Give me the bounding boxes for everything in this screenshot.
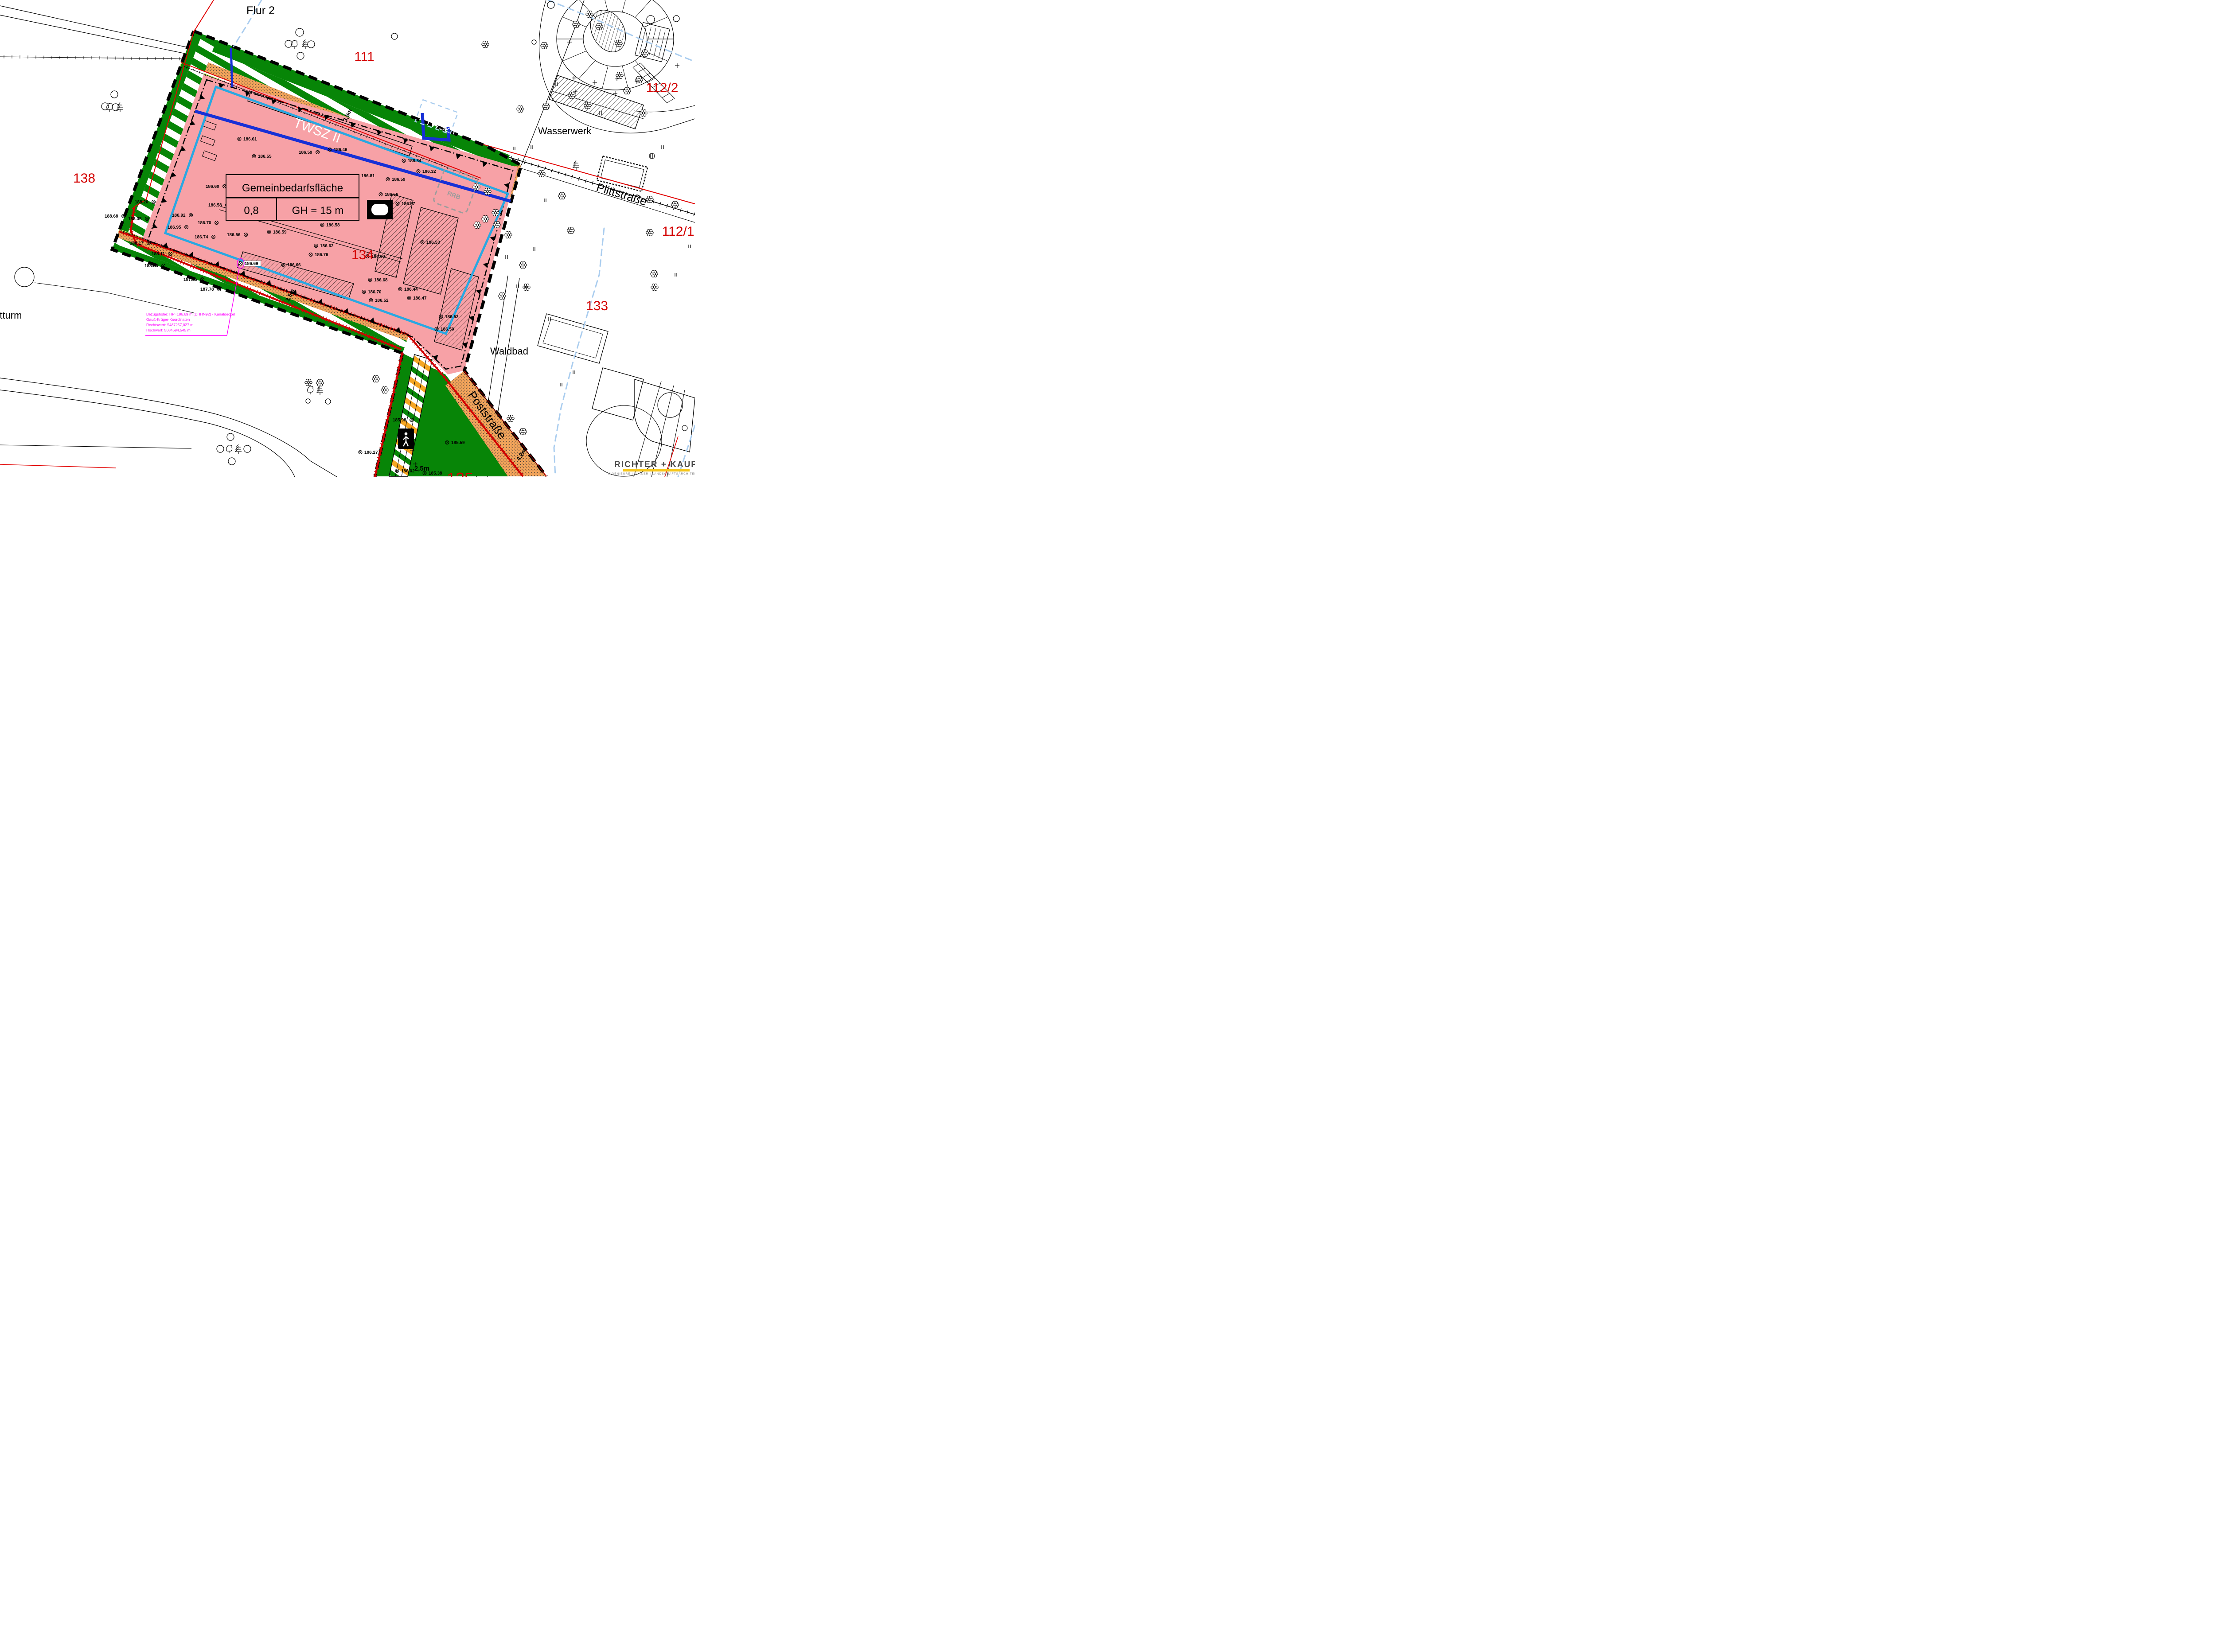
elevation-value: 186.74 — [195, 235, 208, 240]
shrub-flower-icon — [636, 76, 643, 83]
shrub-flower-icon — [615, 40, 622, 47]
elevation-value: 186.95 — [168, 225, 181, 230]
flower-center — [486, 190, 488, 192]
label-wartturm: rtturm — [0, 310, 22, 321]
ref-line1: Bezugshöhe: HP=186.69 m (DHHN92) - Kanal… — [146, 312, 235, 316]
flower-center — [375, 378, 377, 380]
elevation-value: 186.53 — [426, 240, 440, 245]
shrub-flower-icon — [624, 87, 631, 94]
elevation-value: 186.66 — [287, 263, 301, 268]
shrub-flower-icon — [519, 428, 527, 435]
elevation-value: 186.55 — [258, 154, 272, 159]
shrub-flower-icon — [492, 209, 499, 216]
public-building-symbol-oval — [371, 204, 388, 215]
info-box-gh: GH = 15 m — [292, 205, 344, 217]
shrub-flower-icon — [558, 192, 566, 199]
shrub-flower-icon — [507, 415, 514, 421]
head — [405, 432, 408, 436]
elevation-value: 186.59 — [299, 150, 312, 155]
elevation-value: 186.56 — [385, 192, 398, 197]
elevation-value: 186.56 — [227, 233, 241, 238]
flower-center — [501, 295, 503, 297]
logo-accent-bar — [623, 469, 690, 471]
parcel-112-1: 112/1 — [662, 224, 694, 239]
flower-center — [561, 195, 563, 197]
site-plan-map: 186.61186.59186.55186.46188.84186.32186.… — [0, 0, 695, 477]
label-waldbad: Waldbad — [490, 346, 528, 357]
elevation-value: 186.57 — [402, 202, 415, 206]
shrub-flower-icon — [641, 50, 648, 56]
flower-center — [674, 203, 676, 206]
shrub-flower-icon — [640, 109, 647, 116]
shrub-flower-icon — [568, 92, 575, 98]
elevation-value: 186.58 — [208, 203, 222, 208]
elevation-value: 186.44 — [404, 287, 418, 292]
flower-center — [319, 382, 321, 384]
shrub-flower-icon — [646, 229, 653, 236]
logo-name: RICHTER + KAUP — [614, 460, 695, 469]
shrub-flower-icon — [381, 386, 388, 393]
elevation-value: 186.32 — [422, 169, 436, 174]
shrub-flower-icon — [482, 215, 489, 222]
flower-center — [570, 229, 572, 231]
parcel-133: 133 — [586, 299, 608, 313]
parcel-134: 134 — [351, 248, 374, 262]
elevation-value: 186.58 — [326, 223, 340, 228]
pedestrian-crossing-sign — [398, 429, 414, 449]
shrub-flower-icon — [519, 261, 527, 268]
shrub-flower-icon — [573, 21, 580, 27]
elevation-value: 188.36 — [144, 264, 158, 269]
flower-center — [484, 43, 486, 45]
label-flur: Flur 2 — [246, 4, 275, 17]
shrub-flower-icon — [567, 227, 574, 234]
flower-center — [570, 94, 573, 96]
elevation-value: 188.17 — [130, 241, 144, 246]
flower-center — [383, 389, 386, 391]
elevation-value: 186.81 — [361, 174, 375, 179]
shrub-flower-icon — [538, 170, 545, 177]
shrub-flower-icon — [484, 188, 491, 195]
elevation-value: 186.60 — [206, 184, 219, 189]
elevation-value: 186.52 — [445, 315, 459, 319]
flower-center — [586, 104, 589, 106]
label-wasserwerk: Wasserwerk — [538, 125, 592, 136]
flower-center — [648, 231, 651, 234]
shrub-flower-icon — [596, 23, 603, 30]
flower-center — [638, 78, 640, 81]
elevation-value: 186.27 — [364, 450, 378, 455]
elevation-value: 188.20 — [135, 200, 148, 205]
flower-center — [522, 264, 524, 266]
elevation-value: 186.59 — [273, 230, 287, 235]
flower-center — [307, 381, 309, 383]
elevation-value: 185.59 — [451, 440, 465, 445]
flower-center — [507, 234, 509, 236]
info-box-title: Gemeinbedarfsfläche — [242, 182, 343, 194]
shrub-flower-icon — [482, 41, 489, 47]
site-plan-canvas: 186.61186.59186.55186.46188.84186.32186.… — [0, 0, 695, 477]
elevation-value: 186.02 — [401, 469, 415, 474]
info-box-grz: 0,8 — [244, 205, 258, 217]
elevation-value: 188.11 — [152, 252, 165, 257]
elevation-value: 186.50 — [441, 327, 454, 332]
shrub-flower-icon — [316, 379, 324, 386]
shrub-flower-icon — [586, 11, 593, 17]
elevation-value: 186.68 — [374, 278, 388, 283]
ref-line4: Hochwert: 5684594,545 m — [146, 328, 191, 332]
flower-center — [519, 108, 521, 110]
flower-center — [543, 44, 545, 47]
elevation-value: 186.70 — [198, 221, 211, 226]
shrub-flower-icon — [499, 292, 506, 299]
flower-center — [495, 223, 498, 226]
parcel-112-2: 112/2 — [646, 81, 679, 95]
shrub-flower-icon — [584, 102, 591, 109]
flower-center — [648, 198, 651, 200]
elevation-value: 185.38 — [429, 471, 442, 476]
shrub-flower-icon — [305, 379, 312, 386]
elevation-value: 186.69 — [245, 261, 258, 266]
elevation-value: 186.76 — [315, 253, 328, 257]
shrub-flower-icon — [517, 105, 524, 112]
parcel-125: 125 — [447, 469, 473, 477]
shrub-flower-icon — [474, 222, 481, 228]
shrub-flower-icon — [651, 284, 658, 290]
flower-center — [642, 112, 644, 114]
shrub-flower-icon — [541, 42, 548, 49]
elevation-value: 187.95 — [183, 277, 197, 282]
shrub-flower-icon — [505, 231, 512, 238]
elevation-value: 188.84 — [408, 159, 421, 164]
shrub-flower-icon — [671, 201, 679, 208]
flower-center — [476, 224, 478, 226]
elevation-value: 186.46 — [334, 148, 347, 152]
measure-2-5m: 2,5m — [414, 465, 429, 472]
flower-center — [484, 218, 486, 220]
logo-block: RICHTER + KAUP INGENIEURE | PLANER | LAN… — [608, 460, 695, 475]
ref-line2: Gauß-Krüger-Koordinaten — [146, 317, 190, 322]
shrub-flower-icon — [372, 375, 379, 382]
parcel-138: 138 — [73, 171, 95, 186]
elevation-value: 186.70 — [368, 290, 382, 295]
flower-center — [644, 52, 646, 54]
ref-line3: Rechtswert: 5487257,027 m — [146, 323, 193, 327]
elevation-value: 186.62 — [320, 244, 334, 249]
flower-center — [588, 13, 590, 15]
flower-center — [626, 90, 628, 92]
elevation-value: 186.61 — [243, 137, 257, 142]
blue-line-vertical — [231, 48, 232, 87]
elevation-value: 188.68 — [105, 214, 118, 219]
flower-center — [494, 211, 496, 214]
elevation-value: 186.52 — [375, 298, 389, 303]
shrub-flower-icon — [651, 270, 658, 277]
flower-center — [617, 42, 620, 44]
elevation-value: 186.92 — [172, 213, 186, 218]
flower-center — [509, 417, 511, 419]
elevation-value: 187.78 — [200, 287, 214, 292]
elevation-value: 186.47 — [413, 296, 427, 301]
logo-tagline: INGENIEURE | PLANER | LANDSCHAFTSARCHITE… — [608, 472, 695, 475]
elevation-value: 186.59 — [392, 177, 406, 182]
shrub-flower-icon — [542, 103, 550, 109]
elevation-value: 188.35 — [128, 217, 142, 222]
flower-center — [653, 273, 655, 275]
shrub-flower-icon — [493, 221, 500, 228]
parcel-111: 111 — [354, 50, 375, 64]
elevation-value: 185.98 — [393, 418, 406, 423]
flower-center — [618, 74, 620, 76]
flower-center — [598, 25, 600, 27]
flower-center — [522, 430, 524, 432]
shrub-flower-icon — [473, 183, 480, 190]
flower-center — [545, 105, 547, 107]
flower-center — [540, 172, 542, 175]
flower-center — [575, 23, 577, 25]
flower-center — [653, 286, 655, 288]
